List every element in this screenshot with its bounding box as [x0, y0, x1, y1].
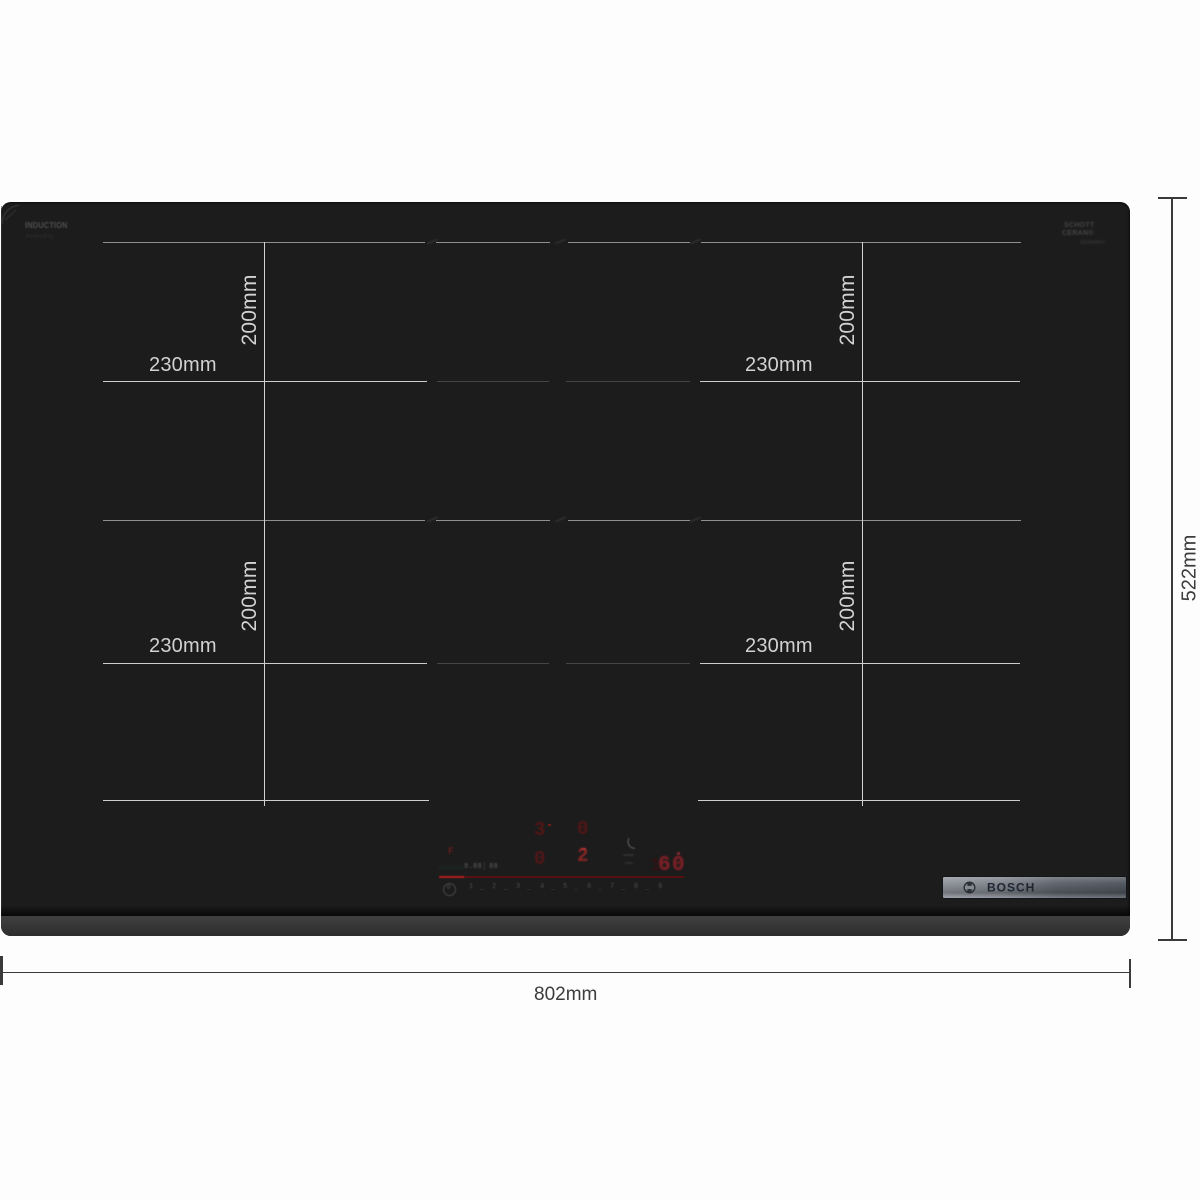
svg-text:BOSCH: BOSCH: [987, 881, 1035, 895]
